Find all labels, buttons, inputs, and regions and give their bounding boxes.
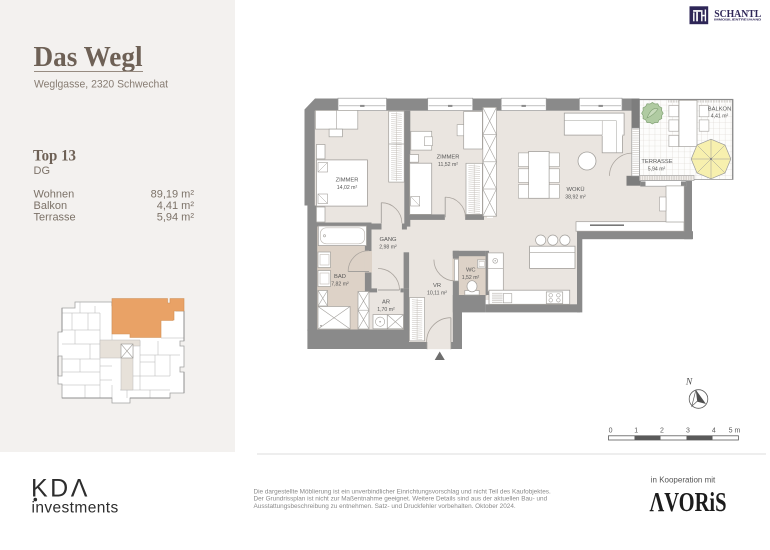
svg-text:1,70 m²: 1,70 m² — [377, 307, 395, 313]
svg-text:DG: DG — [34, 165, 51, 177]
svg-text:Weglgasse, 2320 Schwechat: Weglgasse, 2320 Schwechat — [34, 79, 168, 91]
svg-text:4,41 m²: 4,41 m² — [711, 114, 729, 120]
svg-text:N: N — [685, 378, 693, 388]
svg-text:BALKON: BALKON — [708, 107, 732, 113]
svg-text:5 m: 5 m — [729, 428, 741, 435]
svg-text:VR: VR — [433, 283, 441, 289]
svg-text:Das Wegl: Das Wegl — [34, 42, 143, 73]
svg-text:GANG: GANG — [379, 237, 397, 243]
svg-text:89,19 m²: 89,19 m² — [151, 189, 195, 201]
svg-text:0: 0 — [609, 428, 613, 435]
svg-text:IMMOBILIENTREUHAND: IMMOBILIENTREUHAND — [714, 18, 761, 22]
svg-text:38,92 m²: 38,92 m² — [565, 195, 586, 201]
svg-text:ΛVORiS: ΛVORiS — [650, 487, 727, 517]
svg-text:ZIMMER: ZIMMER — [336, 178, 359, 184]
svg-text:ZIMMER: ZIMMER — [437, 155, 460, 161]
svg-text:BAD: BAD — [334, 274, 346, 280]
svg-text:TERRASSE: TERRASSE — [641, 159, 672, 165]
svg-text:3: 3 — [686, 428, 690, 435]
svg-text:Wohnen: Wohnen — [34, 189, 75, 201]
svg-text:WOKÜ: WOKÜ — [566, 186, 584, 193]
svg-text:5,94 m²: 5,94 m² — [648, 167, 666, 173]
svg-text:Die dargestellte Möblierung is: Die dargestellte Möblierung ist ein unve… — [254, 489, 551, 496]
svg-text:Balkon: Balkon — [34, 200, 68, 212]
svg-text:Ausstattungsbeschreibung zu en: Ausstattungsbeschreibung zu entnehmen. S… — [254, 503, 516, 510]
svg-text:7,82 m²: 7,82 m² — [331, 282, 349, 288]
svg-text:in Kooperation mit: in Kooperation mit — [651, 476, 716, 485]
svg-text:14,02 m²: 14,02 m² — [337, 185, 358, 191]
svg-text:WC: WC — [466, 268, 476, 274]
svg-text:2: 2 — [660, 428, 664, 435]
svg-text:1: 1 — [634, 428, 638, 435]
svg-text:10,11 m²: 10,11 m² — [427, 291, 447, 297]
svg-text:Top 13: Top 13 — [33, 148, 76, 165]
svg-text:4: 4 — [712, 428, 716, 435]
svg-text:11,52 m²: 11,52 m² — [438, 162, 458, 168]
svg-text:Der Grundrissplan ist nicht zu: Der Grundrissplan ist nicht zur Maßentna… — [254, 496, 548, 503]
svg-text:Terrasse: Terrasse — [34, 212, 76, 224]
svg-text:1,52 m²: 1,52 m² — [462, 275, 480, 281]
svg-text:4,41 m²: 4,41 m² — [157, 200, 195, 212]
svg-text:KDΛ: KDΛ — [31, 475, 90, 503]
svg-text:2,98 m²: 2,98 m² — [379, 245, 397, 251]
svg-text:AR: AR — [382, 300, 390, 306]
svg-text:investments: investments — [32, 500, 119, 517]
svg-text:5,94 m²: 5,94 m² — [157, 212, 195, 224]
